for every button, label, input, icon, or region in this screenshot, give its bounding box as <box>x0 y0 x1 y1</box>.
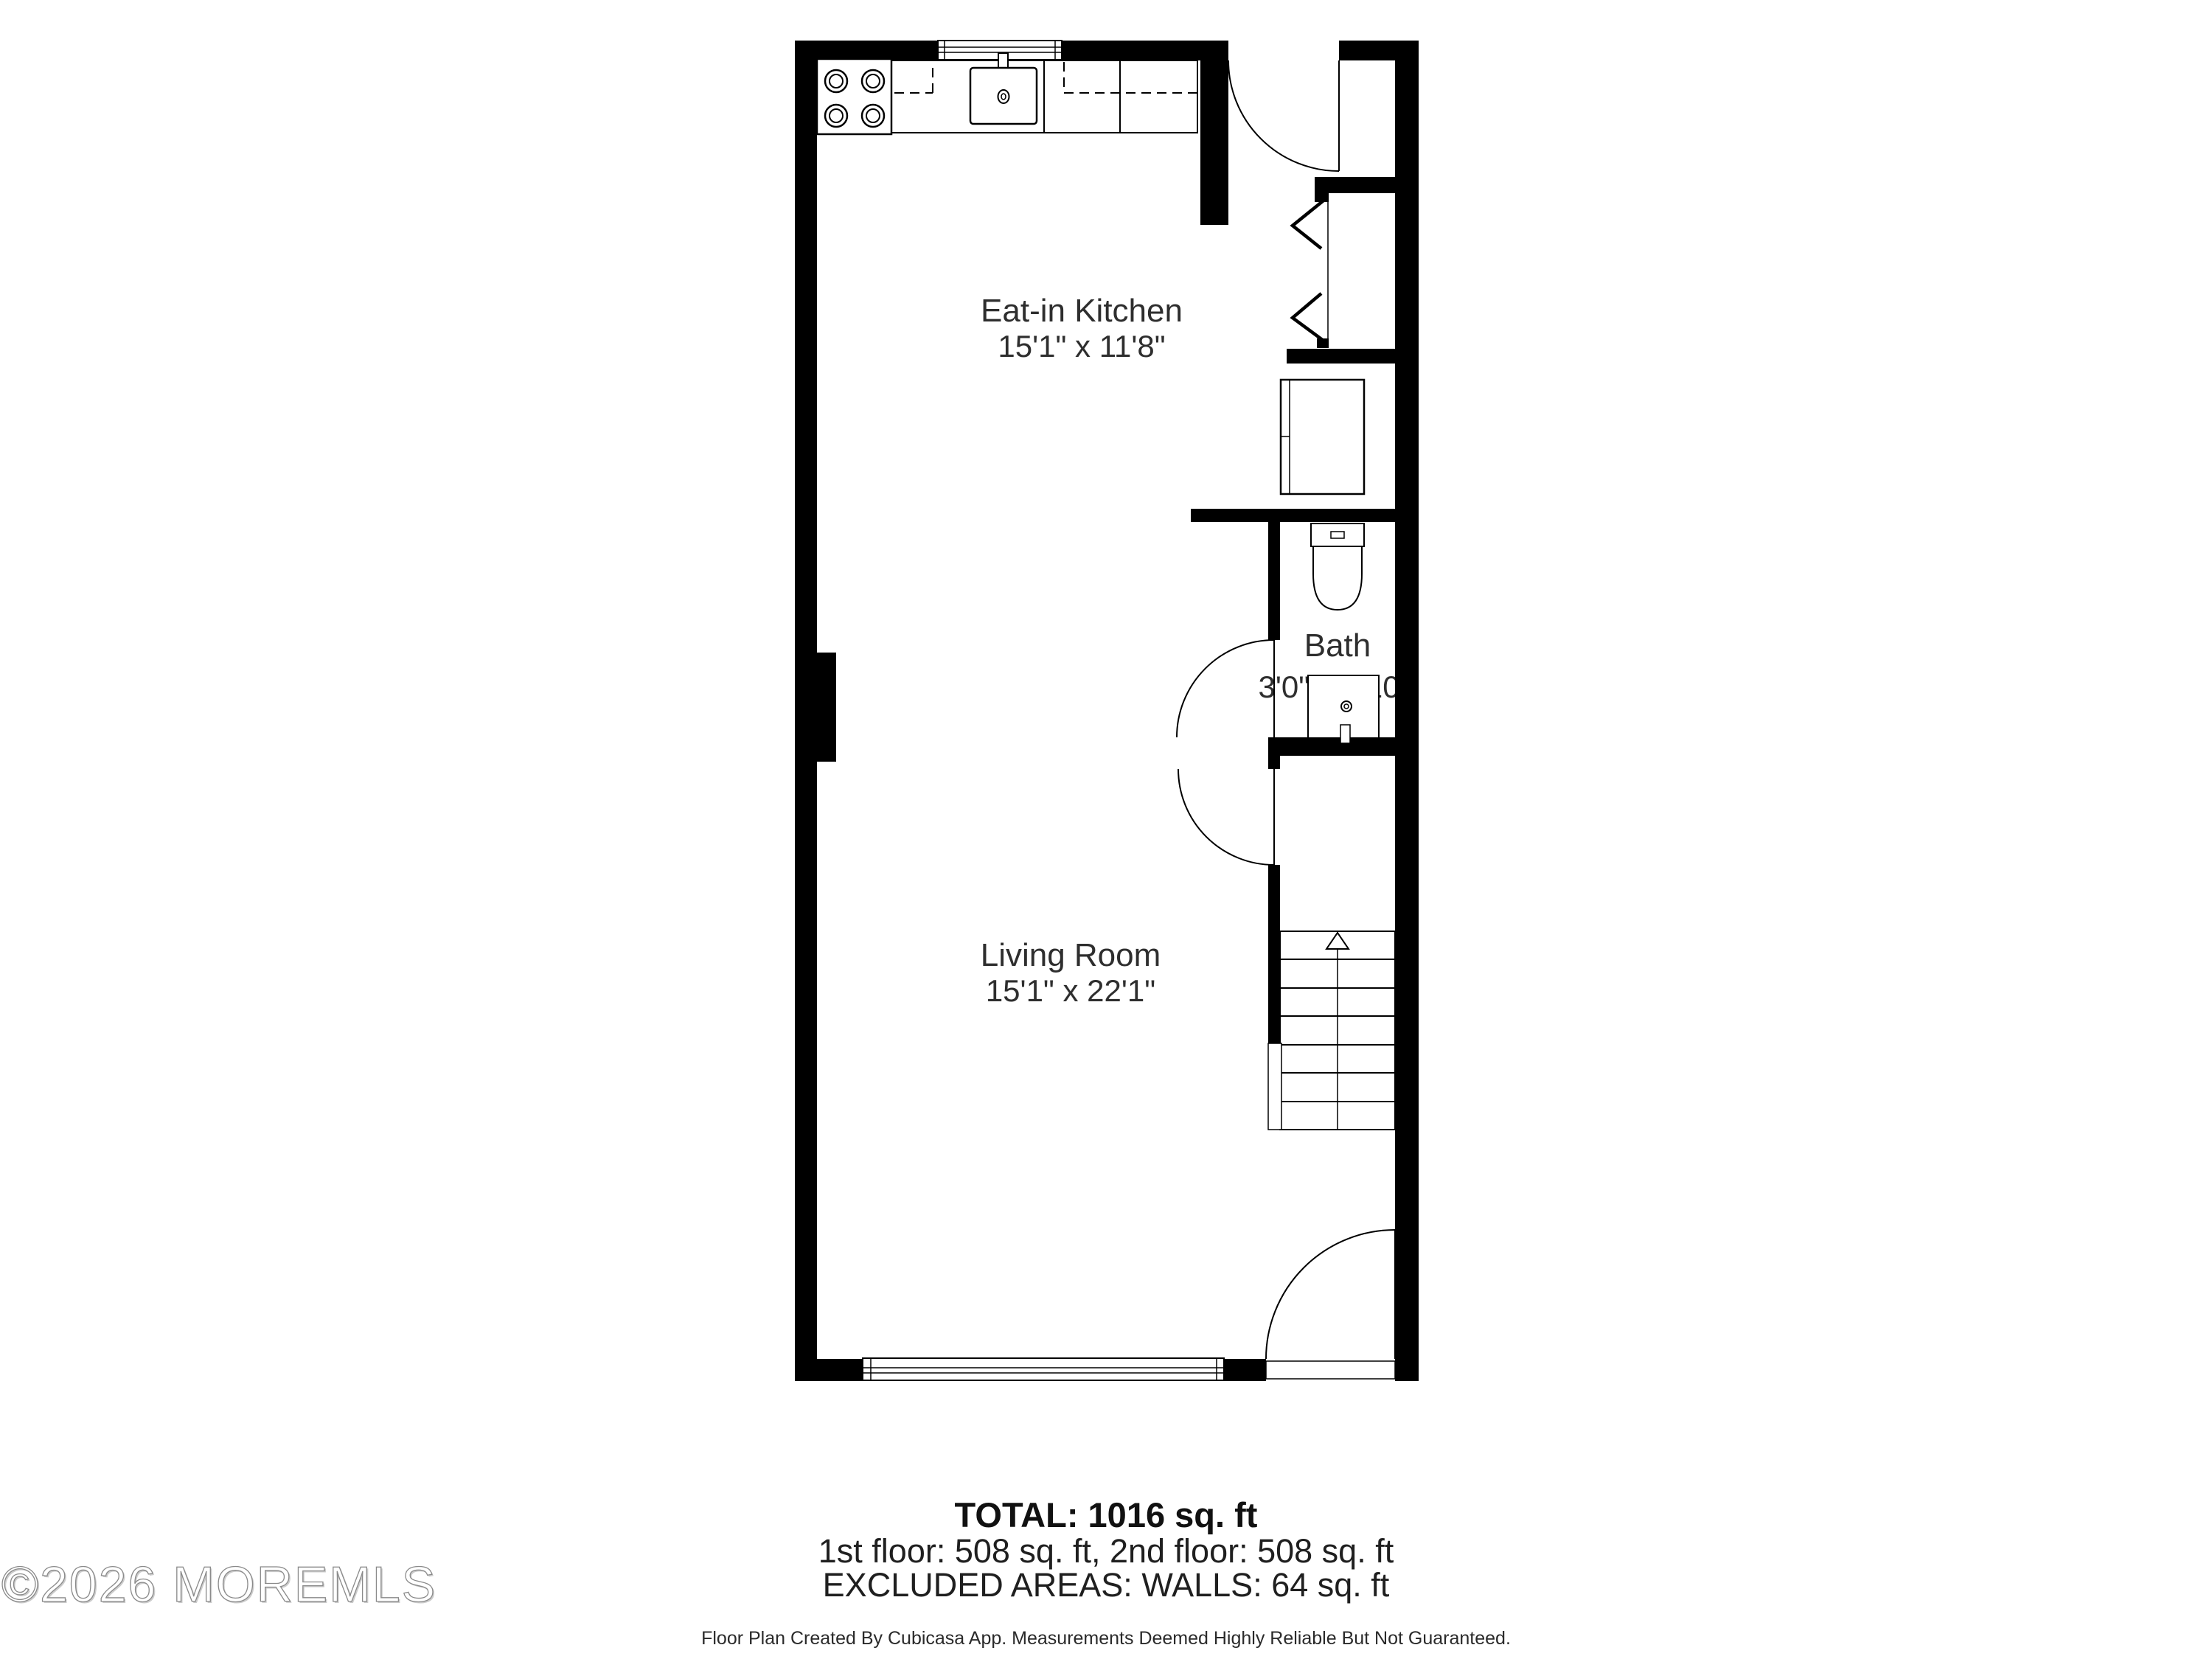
front-door-threshold <box>1266 1361 1395 1379</box>
closet-wall-stub-bottom <box>1287 349 1395 364</box>
mls-watermark: ©2026 MOREMLS <box>1 1556 437 1613</box>
front-door-icon <box>1266 1230 1395 1359</box>
sink-icon <box>970 53 1037 124</box>
stair-railing <box>1268 1043 1281 1130</box>
entry-door-icon <box>1228 60 1339 171</box>
floor-plan-drawing <box>767 22 1445 1401</box>
entry-wall-stub <box>1200 60 1228 225</box>
closet-bifold-door-icon <box>1293 190 1329 348</box>
bath-left-wall <box>1268 522 1280 640</box>
living-room-window-icon <box>863 1358 1224 1380</box>
bottom-wall <box>795 1359 863 1381</box>
bath-door-icon <box>1177 640 1274 737</box>
floor-plan-page: { "floor_plan": { "rooms": [ {"name": "E… <box>0 0 2212 1659</box>
interior-walls <box>1191 60 1419 1043</box>
stair-wall <box>1268 865 1280 1043</box>
disclaimer-text: Floor Plan Created By Cubicasa App. Meas… <box>0 1628 2212 1649</box>
fridge-icon <box>1281 380 1364 494</box>
bottom-wall <box>1224 1359 1266 1381</box>
understair-door-icon <box>1178 769 1274 865</box>
right-wall <box>1395 41 1419 1381</box>
total-area-text: TOTAL: 1016 sq. ft <box>0 1495 2212 1535</box>
vanity-sink-icon <box>1308 675 1379 743</box>
kitchen-bath-divider-wall <box>1191 509 1419 522</box>
left-wall <box>795 41 817 1381</box>
top-wall <box>1062 41 1228 60</box>
stair-direction-arrow-icon <box>1326 933 1349 949</box>
wall-protrusion <box>817 653 836 762</box>
stairs-icon <box>1280 931 1395 1130</box>
toilet-icon <box>1311 524 1364 610</box>
stove-icon <box>817 59 891 134</box>
hall-wall-piece <box>1268 756 1280 769</box>
